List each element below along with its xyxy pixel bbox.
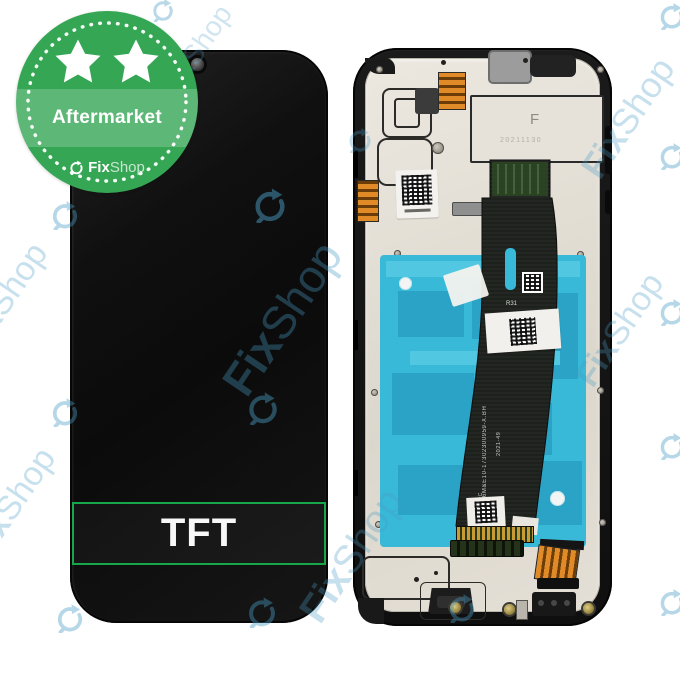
- antenna-contact-block: [532, 592, 576, 616]
- screw-hole: [414, 577, 419, 582]
- watermark-text: FixShop: [0, 236, 56, 364]
- refresh-arrow-icon: [69, 160, 84, 175]
- contact-bump: [551, 600, 557, 606]
- watermark-refresh-icon: [55, 603, 85, 638]
- brand-logo: FixShop: [16, 159, 198, 176]
- screw-gold: [583, 603, 594, 614]
- product-photo: TFT F 20211130: [0, 0, 680, 680]
- quality-stars: [16, 37, 198, 85]
- flex-slot: [505, 248, 516, 290]
- screw-gold: [504, 604, 515, 615]
- flex-traces: [492, 162, 548, 196]
- watermark-refresh-icon: [658, 588, 680, 621]
- metal-bar: [516, 600, 528, 620]
- qr-code: [474, 500, 497, 523]
- watermark-refresh-icon: [658, 298, 680, 331]
- badge-band: Aftermarket: [16, 89, 198, 147]
- screw-hole: [434, 571, 438, 575]
- flex-qr-small: [524, 274, 541, 291]
- display-type-label: TFT: [161, 511, 237, 556]
- display-type-band: TFT: [72, 502, 326, 565]
- watermark-text: FixShop: [0, 441, 64, 569]
- contact-bump: [538, 600, 544, 606]
- watermark-refresh-icon: [658, 2, 680, 35]
- aftermarket-badge: Aftermarket FixShop: [16, 11, 198, 193]
- flex-marking: R31: [506, 301, 517, 307]
- qr-code: [509, 317, 537, 346]
- brand-name: FixShop: [88, 159, 145, 176]
- watermark-refresh-icon: [658, 142, 680, 175]
- star-icon: [111, 37, 161, 85]
- watermark-refresh-icon: [658, 432, 680, 465]
- flex-qr-label: [485, 308, 562, 353]
- flex-date-code: 2021-49: [497, 412, 503, 456]
- star-icon: [53, 37, 103, 85]
- board-connector: [450, 540, 524, 557]
- flex-qr-label-2: [466, 496, 506, 529]
- flex-serial: D6M&E10-17302300959-X.BH: [482, 352, 488, 502]
- touch-flex-connector: [537, 578, 579, 589]
- screw-gold: [450, 602, 461, 613]
- phone-back-panel: F 20211130: [353, 48, 612, 626]
- contact-bump: [564, 600, 570, 606]
- badge-label: Aftermarket: [52, 107, 162, 129]
